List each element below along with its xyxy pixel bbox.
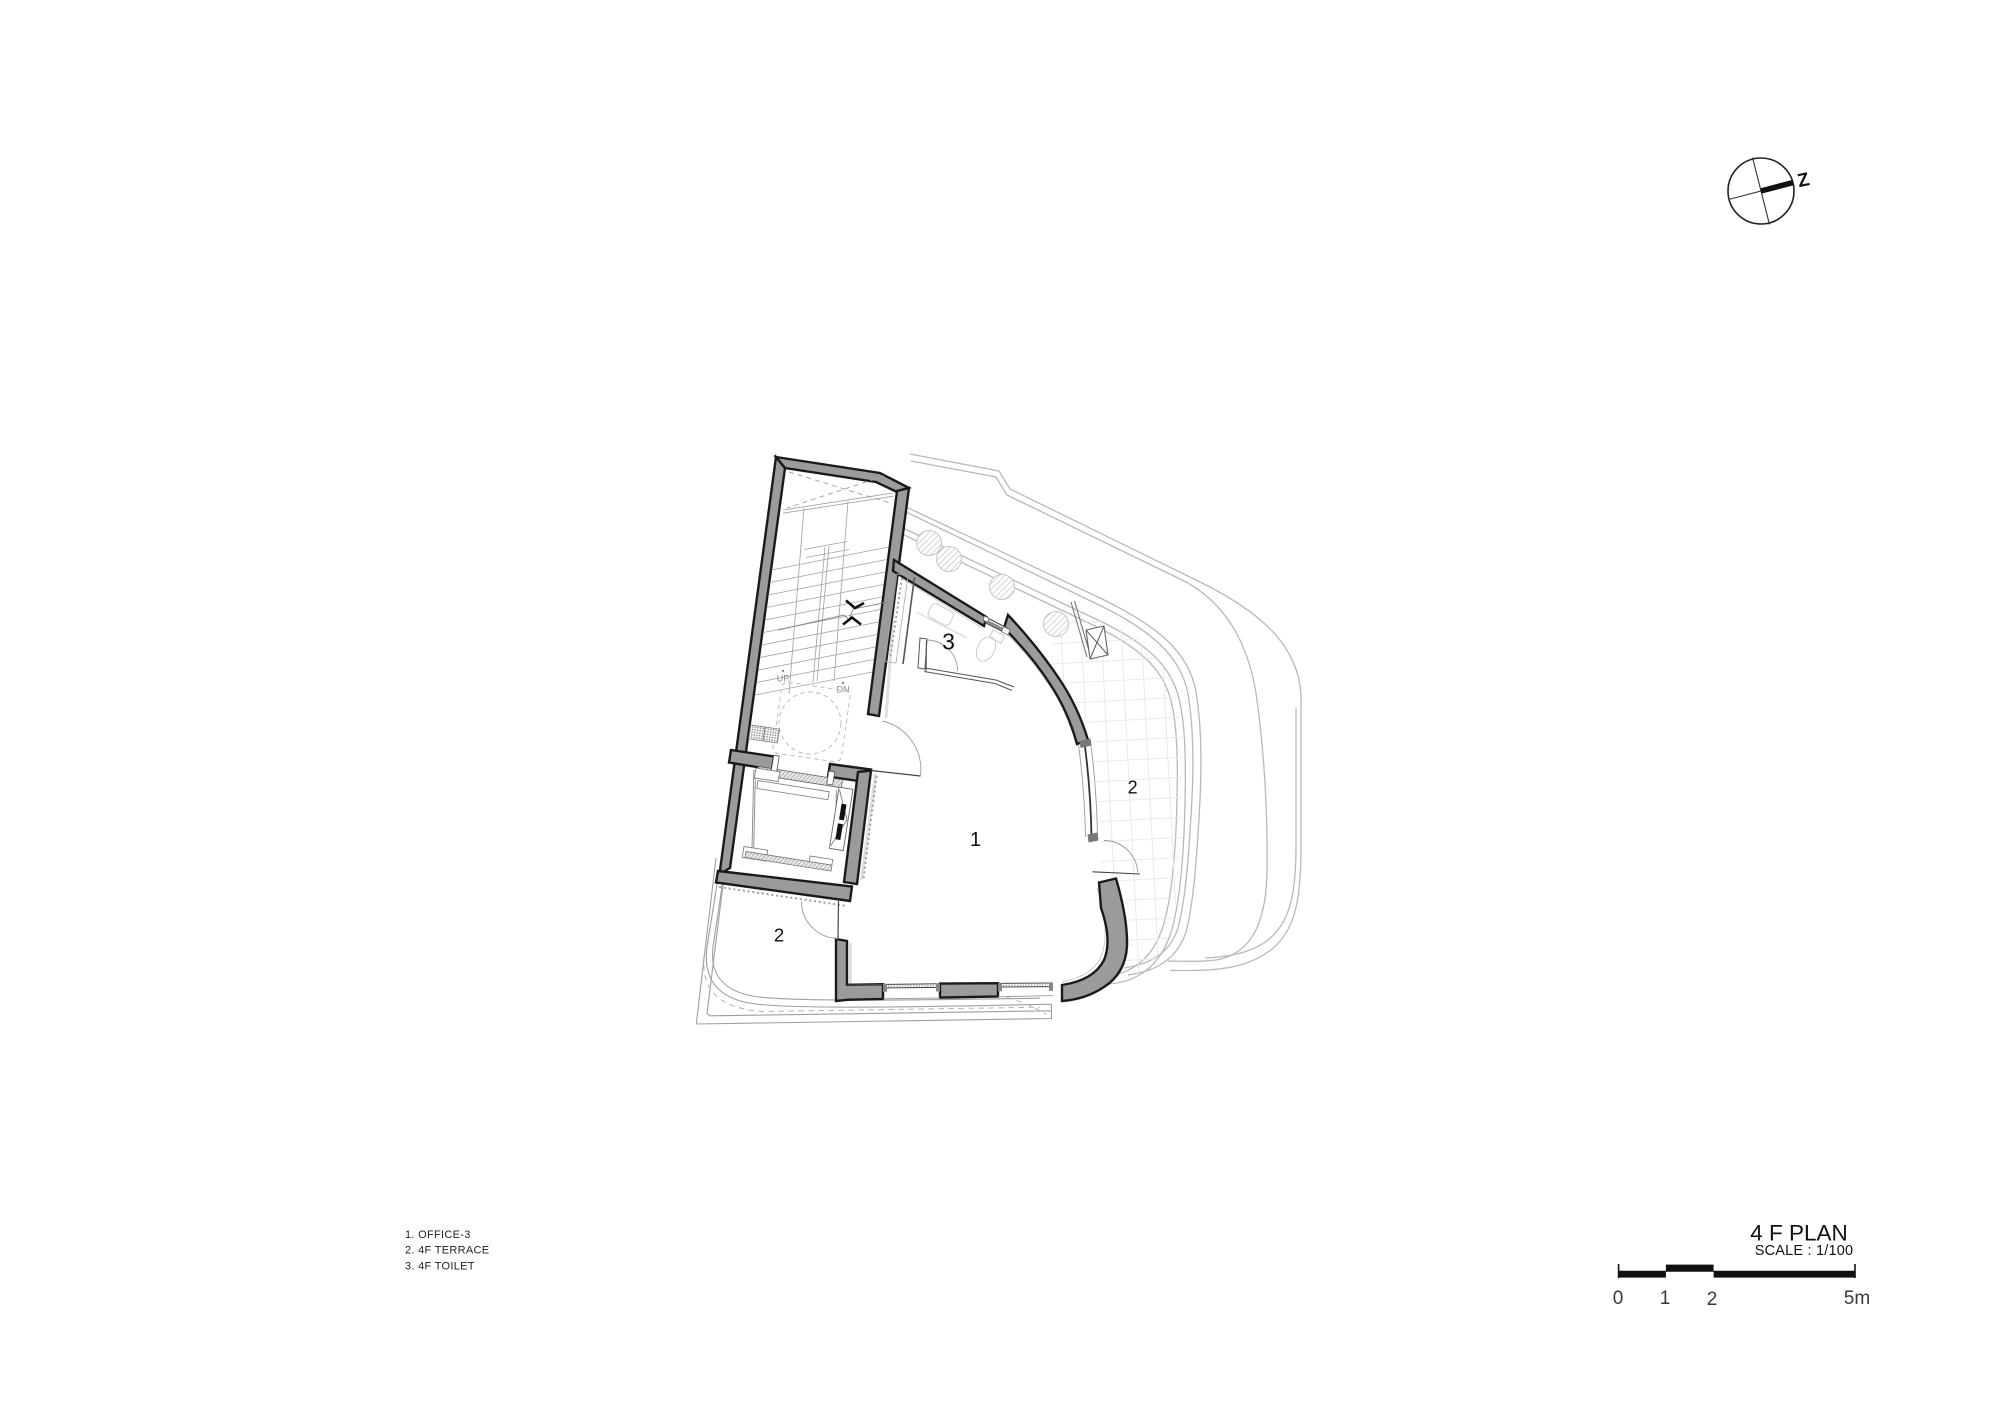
svg-text:SCALE : 1/100: SCALE : 1/100 [1755,1243,1854,1259]
svg-text:1: 1 [970,829,981,851]
svg-text:2. 4F TERRACE: 2. 4F TERRACE [405,1245,489,1257]
svg-text:2: 2 [774,925,784,946]
svg-text:1. OFFICE-3: 1. OFFICE-3 [405,1229,471,1241]
svg-text:0: 0 [1613,1288,1624,1309]
svg-text:3: 3 [942,629,955,655]
svg-text:5m: 5m [1844,1288,1870,1309]
svg-text:3. 4F TOILET: 3. 4F TOILET [405,1261,475,1273]
svg-text:2: 2 [1707,1289,1718,1310]
svg-text:2: 2 [1128,778,1138,798]
svg-text:1: 1 [1660,1288,1671,1309]
svg-text:UP: UP [777,674,790,684]
svg-text:4 F PLAN: 4 F PLAN [1750,1221,1848,1246]
